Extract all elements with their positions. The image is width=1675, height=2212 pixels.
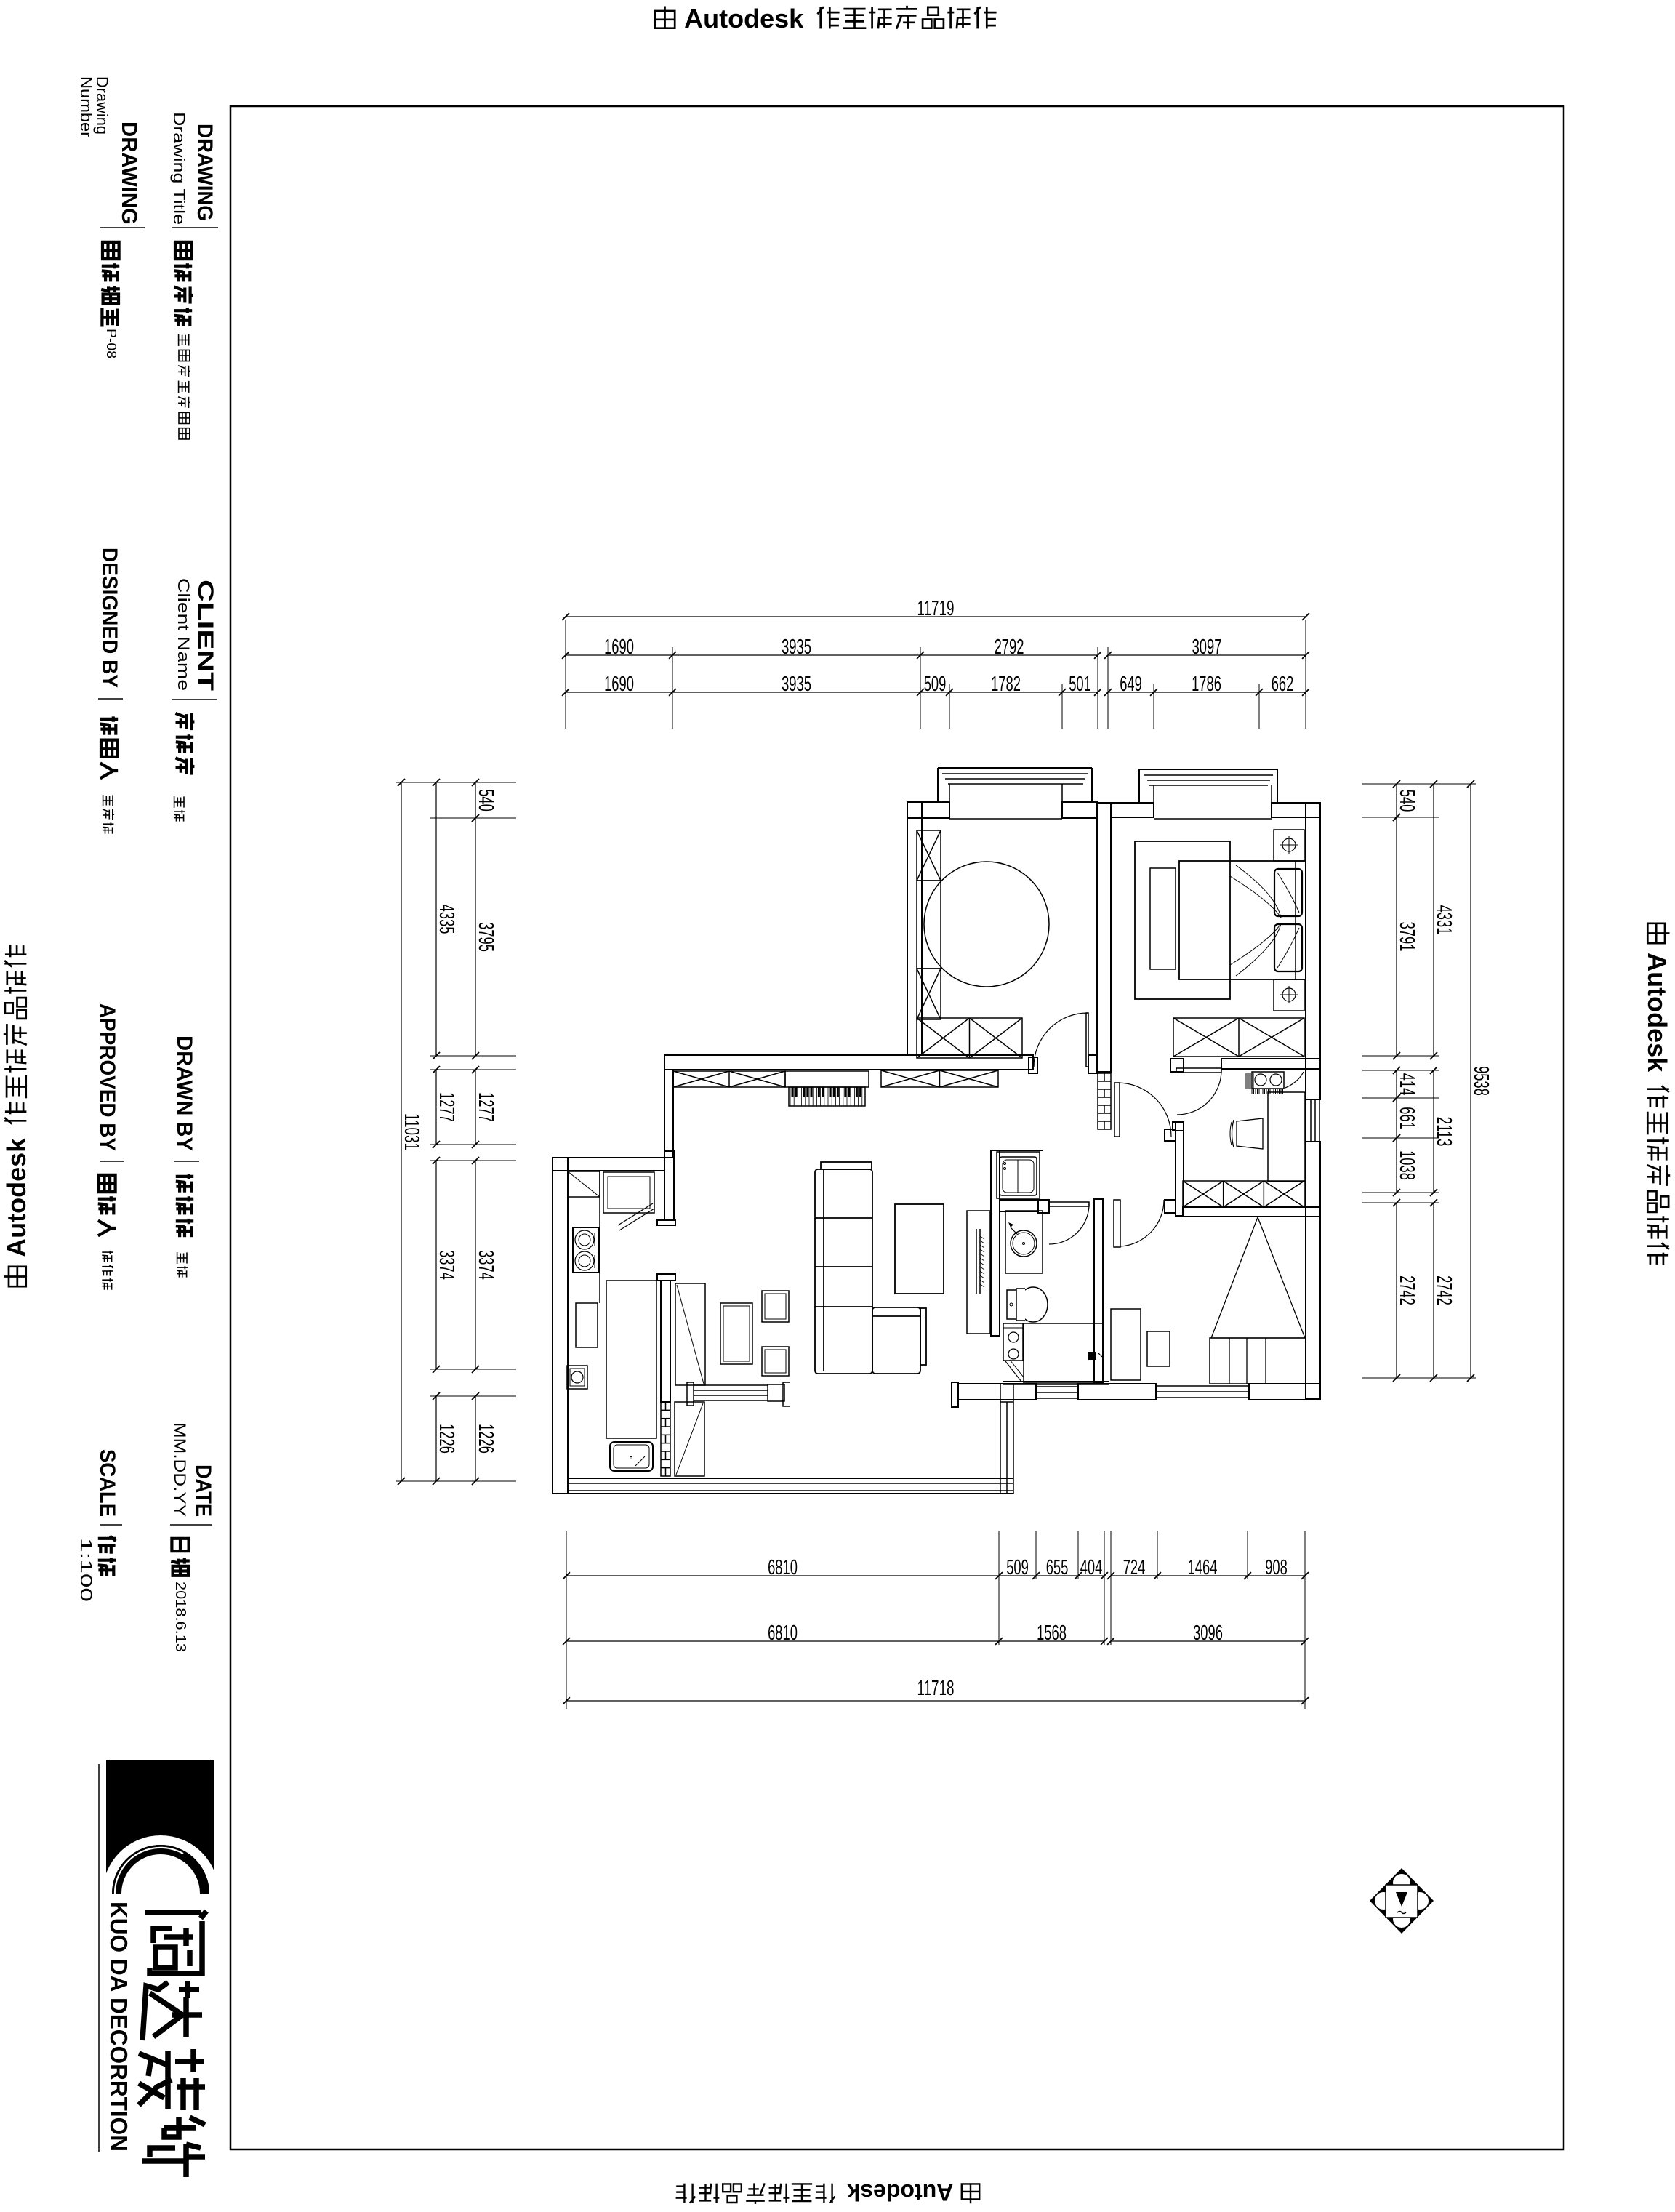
svg-text:DRAWING: DRAWING: [193, 124, 217, 221]
svg-text:509: 509: [1006, 1556, 1029, 1579]
svg-text:1277: 1277: [435, 1092, 458, 1122]
svg-text:1782: 1782: [991, 673, 1021, 696]
svg-text:Client Name: Client Name: [174, 578, 193, 691]
svg-text:4335: 4335: [435, 905, 458, 934]
svg-text:1690: 1690: [604, 673, 634, 696]
svg-text:CLIENT: CLIENT: [193, 580, 217, 691]
svg-text:414: 414: [1395, 1073, 1418, 1096]
svg-text:MM.DD.YY: MM.DD.YY: [171, 1422, 189, 1517]
svg-text:9538: 9538: [1469, 1066, 1493, 1096]
svg-text:1690: 1690: [604, 636, 634, 659]
svg-text:3374: 3374: [474, 1250, 497, 1280]
svg-text:Autodesk: Autodesk: [1, 1131, 31, 1264]
svg-text:Autodesk: Autodesk: [1642, 947, 1672, 1080]
svg-text:509: 509: [924, 673, 947, 696]
svg-text:APPROVED BY: APPROVED BY: [95, 1003, 119, 1151]
svg-text:4331: 4331: [1432, 905, 1455, 935]
svg-text:11031: 11031: [400, 1113, 423, 1150]
svg-text:3374: 3374: [435, 1250, 458, 1280]
svg-text:1226: 1226: [474, 1424, 497, 1454]
svg-text:Autodesk: Autodesk: [841, 2179, 959, 2205]
svg-text:SCALE: SCALE: [95, 1449, 119, 1517]
svg-text:DRAWN BY: DRAWN BY: [172, 1035, 196, 1151]
svg-text:2113: 2113: [1432, 1117, 1455, 1147]
svg-text:Autodesk: Autodesk: [678, 4, 811, 33]
svg-text:DRAWING: DRAWING: [117, 121, 141, 225]
svg-text:1568: 1568: [1037, 1622, 1067, 1645]
svg-text:6810: 6810: [768, 1622, 798, 1645]
svg-text:1464: 1464: [1188, 1556, 1218, 1579]
svg-text:540: 540: [474, 789, 497, 812]
svg-text:908: 908: [1265, 1556, 1288, 1579]
svg-text:501: 501: [1069, 673, 1091, 696]
svg-text:11719: 11719: [917, 597, 955, 620]
svg-text:3935: 3935: [782, 636, 811, 659]
svg-text:DESIGNED BY: DESIGNED BY: [97, 548, 121, 688]
svg-text:3935: 3935: [782, 673, 811, 696]
svg-text:724: 724: [1123, 1556, 1146, 1579]
svg-text:DATE: DATE: [191, 1464, 215, 1517]
svg-text:1038: 1038: [1395, 1150, 1418, 1180]
svg-text:3096: 3096: [1193, 1622, 1223, 1645]
svg-text:649: 649: [1120, 673, 1142, 696]
svg-text:1277: 1277: [474, 1092, 497, 1122]
svg-text:2792: 2792: [995, 636, 1024, 659]
svg-text:3795: 3795: [474, 922, 497, 952]
svg-text:P-08: P-08: [104, 329, 119, 358]
svg-text:661: 661: [1395, 1107, 1418, 1129]
svg-text:1786: 1786: [1192, 673, 1221, 696]
svg-text:655: 655: [1046, 1556, 1069, 1579]
svg-text:3791: 3791: [1395, 922, 1418, 952]
svg-text:662: 662: [1272, 673, 1294, 696]
svg-text:KUO DA DECORRTION: KUO DA DECORRTION: [105, 1902, 132, 2152]
svg-text:2742: 2742: [1432, 1275, 1455, 1305]
svg-text:404: 404: [1080, 1556, 1103, 1579]
svg-text:6810: 6810: [768, 1556, 798, 1579]
svg-text:11718: 11718: [917, 1677, 955, 1700]
svg-text:540: 540: [1395, 790, 1418, 812]
svg-text:Drawing Title: Drawing Title: [170, 112, 188, 225]
svg-text:1226: 1226: [435, 1424, 458, 1454]
svg-text:1:100: 1:100: [77, 1538, 95, 1602]
svg-text:2742: 2742: [1395, 1275, 1418, 1305]
svg-text:Number: Number: [77, 76, 95, 137]
svg-text:2018.6.13: 2018.6.13: [172, 1582, 188, 1652]
svg-text:3097: 3097: [1192, 636, 1222, 659]
